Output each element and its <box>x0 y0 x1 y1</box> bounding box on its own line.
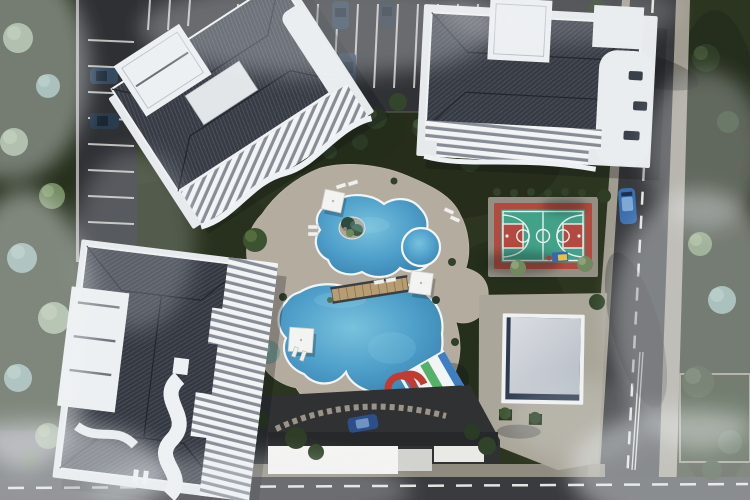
round-pool <box>402 228 440 266</box>
aerial-render <box>0 0 750 500</box>
driving-car <box>618 187 637 224</box>
site-plan-svg <box>0 0 750 500</box>
